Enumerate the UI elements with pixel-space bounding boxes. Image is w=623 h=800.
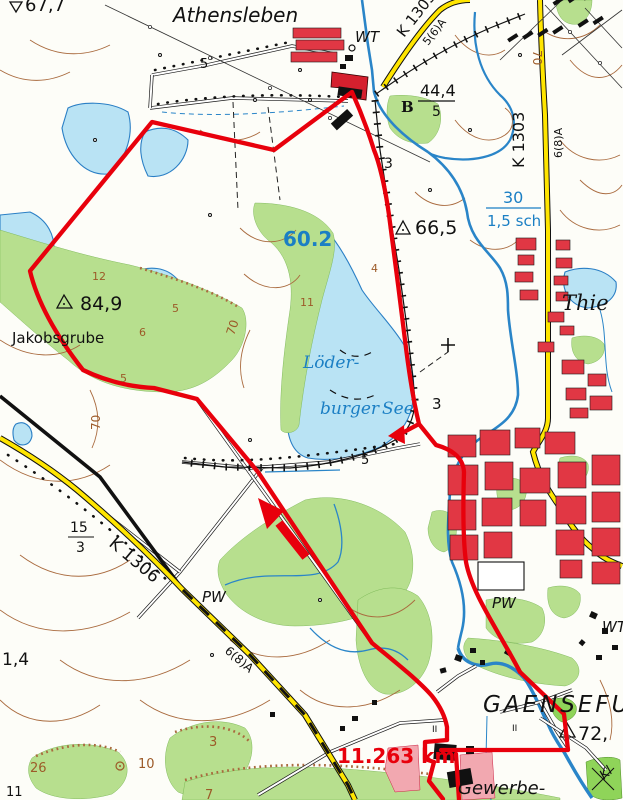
wayside-cross [441,338,455,352]
svg-text:26: 26 [30,761,47,776]
fraction-3: 3 [76,540,85,556]
ford-width: 30 [503,188,523,207]
spot-1-4: 1,4 [2,650,29,670]
elevation-44-4: 44,4 [420,81,456,100]
label-11-corner: 11 [6,785,23,800]
label-3-rail: 3 [384,156,393,172]
route-distance: 11.263 km [337,744,455,768]
label-wt-top: WT [355,28,381,46]
svg-text:12: 12 [92,270,106,283]
place-label-athensleben: Athensleben [171,3,298,27]
label-b: B [401,98,414,116]
label-pw-center: PW [202,588,227,606]
label-gewerbe: Gewerbe- [458,778,545,799]
pond [141,128,188,176]
svg-text:10: 10 [138,757,155,772]
road-label-k1303-vert: K 1303 [509,112,528,168]
road-number-5-south: 5 [361,453,369,468]
svg-text:II: II [512,724,517,734]
map-canvas: Athensleben WT 67,7 5 K 1303 5(6)A 44,4 … [0,0,623,800]
trig-point-67-7 [10,2,22,12]
label-3-east: 3 [432,395,442,413]
svg-text:4: 4 [371,262,378,275]
road-number-5: 5 [200,57,208,72]
contour-70-a: 70 [89,415,103,430]
ford-depth: 1,5 sch [487,212,541,230]
place-label-jakobsgrube: Jakobsgrube [11,329,104,347]
lake-name-2: burger [320,399,380,419]
svg-text:II: II [432,725,437,735]
elevation-67-7: 67,7 [25,0,65,16]
elevation-66-5: 66,5 [415,217,457,239]
pond [13,423,32,445]
svg-text:5: 5 [120,372,127,385]
fraction-15: 15 [70,520,88,536]
contour-70-b: 70 [530,50,544,65]
label-pw-right: PW [492,594,517,612]
lake-name-3: See [382,399,414,419]
thie-village [515,238,612,418]
label-wt-right: WT [602,618,623,636]
place-label-thie: Thie [562,291,609,315]
jakobsgrube-forest [0,230,246,392]
elevation-44-4-sub: 5 [432,104,441,120]
pw-building [478,562,524,590]
svg-text:6: 6 [139,326,146,339]
road-label-6-8-a-vert: 6(8)A [552,127,565,158]
svg-text:11: 11 [300,296,314,309]
svg-text:5: 5 [172,302,179,315]
trig-point-66-5 [396,221,410,234]
place-label-gaensefurth: GAENSEFURTH [483,692,623,718]
svg-text:7: 7 [205,788,213,800]
lake-name-1: Löder- [302,353,360,373]
svg-text:3: 3 [209,735,217,750]
spot-height-60-2: 60.2 [283,227,332,251]
elevation-84-9: 84,9 [80,293,122,315]
topo-map: Athensleben WT 67,7 5 K 1303 5(6)A 44,4 … [0,0,623,800]
elevation-72: 72, [578,723,608,745]
